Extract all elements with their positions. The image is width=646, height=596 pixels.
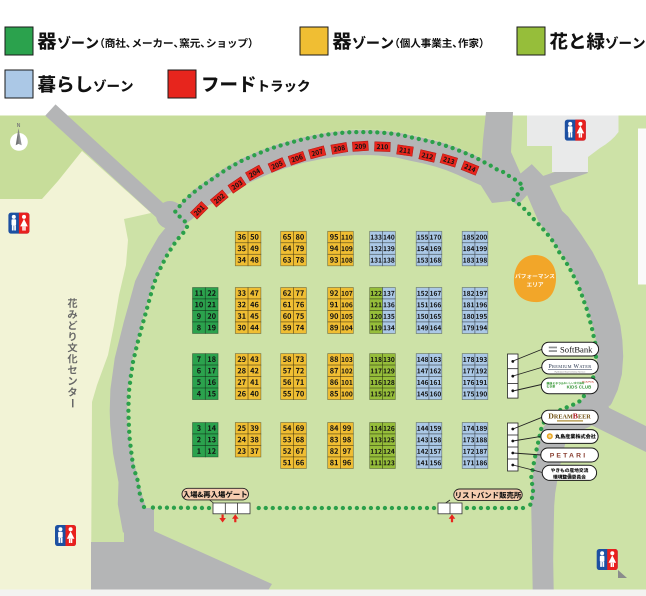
svg-text:Hydration Now Delivery Service: Hydration Now Delivery Service (555, 370, 587, 373)
svg-text:PETARI: PETARI (550, 453, 588, 460)
svg-text:N: N (17, 123, 21, 129)
svg-text:SoftBank: SoftBank (560, 345, 593, 355)
svg-text:KIDS CLUB: KIDS CLUB (567, 385, 592, 390)
svg-text:DREAMBEER: DREAMBEER (548, 412, 591, 421)
